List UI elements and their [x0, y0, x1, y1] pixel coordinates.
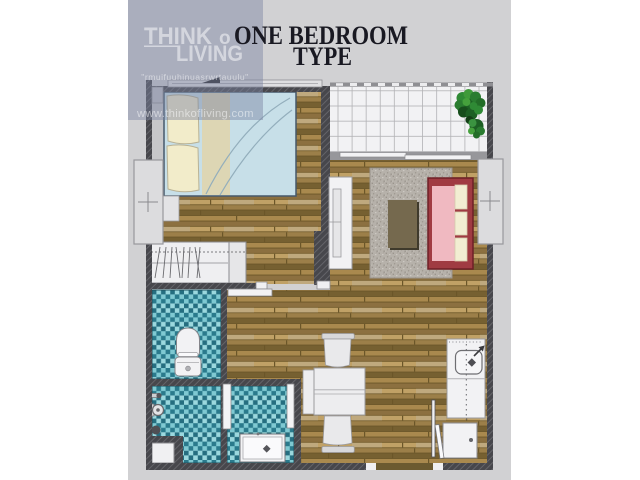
svg-text:www.thinkofliving.com: www.thinkofliving.com — [136, 108, 254, 120]
svg-text:"rmuifuuhinuasrwrtauulu": "rmuifuuhinuasrwrtauulu" — [141, 72, 248, 82]
svg-text:TYPE: TYPE — [293, 42, 352, 71]
svg-text:LIVING: LIVING — [176, 41, 243, 66]
